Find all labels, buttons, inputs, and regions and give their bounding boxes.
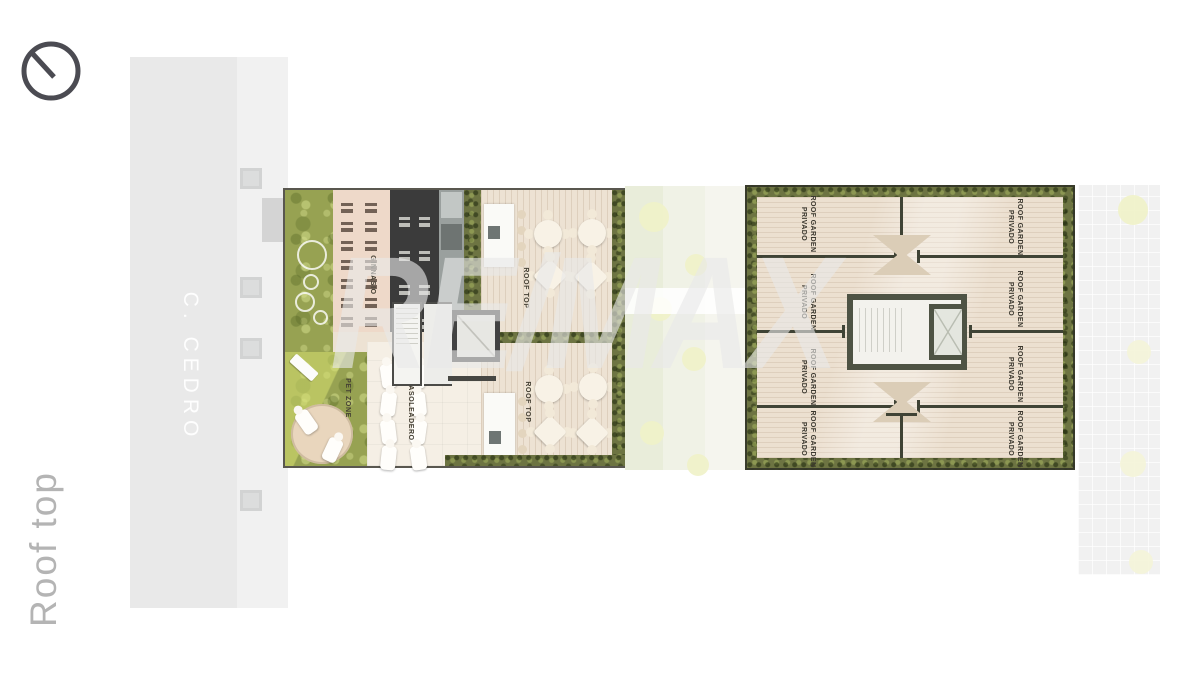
roof-garden-label-line2: PRIVADO — [798, 422, 807, 456]
floor-name-label: Roof top — [31, 439, 57, 659]
street-building-balcony — [240, 490, 262, 511]
roof-garden-label: ROOF GARDEN PRIVADO — [798, 399, 816, 479]
panel-divider-wall — [917, 405, 1063, 408]
gym-label: GINNASIO — [367, 245, 379, 305]
roof-garden-label-line1: ROOF GARDEN — [1014, 199, 1023, 256]
private-roof-deck: ROOF GARDEN PRIVADO ROOF GARDEN PRIVADO … — [757, 197, 1063, 458]
hedge-border — [612, 190, 625, 466]
elevator-cab — [934, 309, 962, 355]
stairs — [396, 306, 418, 344]
core-interior — [853, 300, 961, 364]
stair-elevator-core — [847, 294, 967, 370]
wall — [448, 376, 496, 381]
table-with-chairs — [528, 254, 572, 298]
wall-stub — [900, 197, 903, 239]
street-area: C. CEDRO — [130, 57, 288, 608]
table-with-chairs — [570, 211, 614, 255]
lounger — [409, 445, 427, 471]
wall-stub — [900, 416, 903, 458]
panel-divider-wall — [757, 405, 897, 408]
roof-garden-label-line1: ROOF GARDEN — [807, 196, 816, 253]
roof-garden-label-line2: PRIVADO — [798, 207, 807, 241]
table-with-chairs — [528, 410, 572, 454]
appliance — [489, 431, 501, 444]
orientation-dial-icon — [20, 40, 82, 102]
sunbathing-label: ASOLEADERO — [405, 383, 417, 443]
roof-garden-label-line2: PRIVADO — [1005, 210, 1014, 244]
appliance — [488, 226, 500, 239]
fixture — [441, 192, 462, 218]
corridor — [424, 302, 452, 386]
street-building-balcony — [240, 277, 262, 298]
roof-garden-label-line1: ROOF GARDEN — [807, 274, 816, 331]
round-table — [534, 220, 562, 248]
square-table — [533, 415, 567, 449]
stair-elevator-core — [390, 300, 512, 390]
pet-zone-label: PET ZONE — [342, 368, 354, 428]
tree-ring — [303, 274, 319, 290]
roof-garden-label-line1: ROOF GARDEN — [1014, 411, 1023, 468]
pet-zone-area — [285, 352, 367, 466]
rooftop-lower-label: ROOF TOP — [522, 372, 534, 432]
roof-garden-label-line2: PRIVADO — [798, 285, 807, 319]
private-building-plan: ROOF GARDEN PRIVADO ROOF GARDEN PRIVADO … — [745, 185, 1075, 470]
stair-hall — [392, 302, 422, 386]
bar-counter — [484, 204, 514, 267]
elevator — [929, 304, 967, 360]
tree-ring — [295, 292, 315, 312]
stools — [517, 210, 526, 219]
round-table — [579, 373, 607, 401]
gym-equipment-icons — [333, 190, 390, 332]
bar-counter — [484, 393, 515, 455]
east-lot-area — [1078, 185, 1160, 575]
roof-garden-label-line2: PRIVADO — [798, 360, 807, 394]
roof-garden-label-line1: ROOF GARDEN — [807, 349, 816, 406]
table-with-chairs — [569, 255, 613, 299]
street-name-label: C. CEDRO — [178, 257, 202, 477]
panel-divider-wall — [917, 255, 1063, 258]
roof-garden-label: ROOF GARDEN PRIVADO — [798, 262, 816, 342]
tree-ring — [297, 240, 327, 270]
roof-garden-label-line1: ROOF GARDEN — [1014, 346, 1023, 403]
square-table — [533, 259, 567, 293]
table-with-chairs — [526, 212, 570, 256]
tree-ring — [313, 310, 328, 325]
roof-garden-label-line1: ROOF GARDEN — [1014, 271, 1023, 328]
lounger — [380, 445, 397, 470]
stairs — [859, 308, 907, 352]
street-building-balcony — [240, 338, 262, 359]
courtyard-area — [625, 186, 745, 470]
roof-garden-label-line1: ROOF GARDEN — [807, 411, 816, 468]
round-table — [535, 375, 563, 403]
square-table — [574, 260, 608, 294]
panel-divider-wall — [757, 255, 897, 258]
roof-garden-label-line2: PRIVADO — [1005, 282, 1014, 316]
rooftop-upper-label: ROOF TOP — [520, 258, 532, 318]
table-with-chairs — [570, 411, 614, 455]
gym-room — [333, 190, 390, 332]
tree-canopy — [1118, 195, 1148, 225]
roof-garden-label: ROOF GARDEN PRIVADO — [798, 184, 816, 264]
round-table — [578, 219, 606, 247]
roof-garden-label-line2: PRIVADO — [1005, 422, 1014, 456]
floorplan-canvas: Roof top C. CEDRO GINNASIO — [0, 0, 1178, 674]
elevator — [452, 310, 500, 362]
roof-garden-label: ROOF GARDEN PRIVADO — [1005, 187, 1023, 267]
square-table — [575, 416, 609, 450]
fixture — [441, 224, 462, 250]
roof-garden-label: ROOF GARDEN PRIVADO — [1005, 259, 1023, 339]
amenities-building-plan: GINNASIO — [283, 188, 625, 468]
roof-garden-label: ROOF GARDEN PRIVADO — [1005, 399, 1023, 479]
street-sidewalk — [237, 57, 288, 608]
table-with-chairs — [571, 365, 615, 409]
hedge-border — [445, 455, 625, 466]
courtyard-path — [625, 288, 745, 314]
tree-canopy — [639, 202, 669, 232]
street-building-balcony — [240, 168, 262, 189]
elevator-cab — [457, 315, 495, 357]
roof-garden-label-line2: PRIVADO — [1005, 357, 1014, 391]
